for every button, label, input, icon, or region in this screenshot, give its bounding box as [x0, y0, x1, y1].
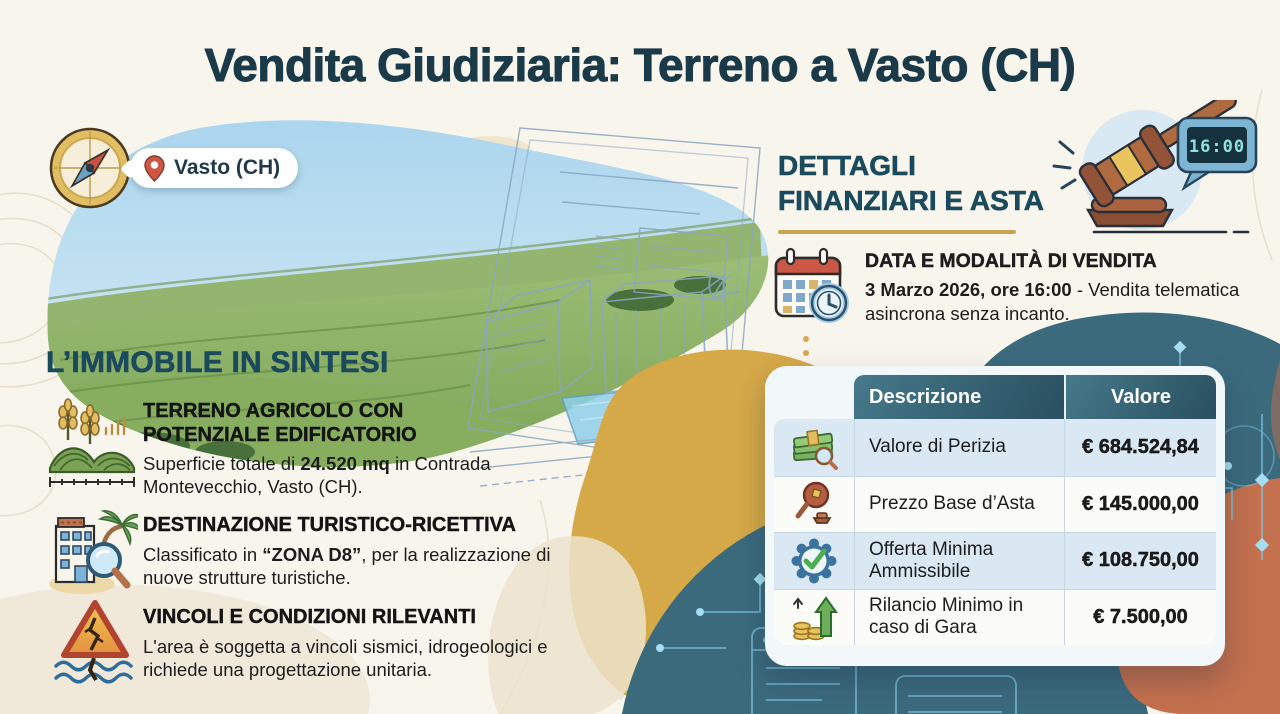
feature-title: DESTINAZIONE TURISTICO-RICETTIVA — [143, 514, 563, 538]
table-row-value: € 145.000,00 — [1064, 476, 1216, 533]
table-row-value: € 7.500,00 — [1064, 589, 1216, 646]
map-pin-icon — [144, 155, 165, 182]
left-section-heading: L’IMMOBILE IN SINTESI — [46, 346, 389, 380]
table-header-valore: Valore — [1064, 375, 1216, 419]
feature-item-vincoli: VINCOLI E CONDIZIONI RILEVANTI L'area è … — [143, 606, 573, 681]
page-title: Vendita Giudiziaria: Terreno a Vasto (CH… — [0, 38, 1280, 92]
auction-gavel-icon: 16:00 — [1030, 100, 1262, 242]
feature-title: TERRENO AGRICOLO CON POTENZIALE EDIFICAT… — [143, 400, 473, 447]
calendar-clock-icon — [772, 246, 852, 326]
table-row-value: € 108.750,00 — [1064, 532, 1216, 589]
feature-body: Superficie totale di 24.520 mq in Contra… — [143, 452, 553, 499]
sale-date-title: DATA E MODALITÀ DI VENDITA — [865, 250, 1255, 273]
table-row-icon-cell — [774, 419, 854, 476]
infographic-canvas: Vendita Giudiziaria: Terreno a Vasto (CH… — [0, 0, 1280, 714]
sale-date-body: 3 Marzo 2026, ore 16:00 - Vendita telema… — [865, 278, 1260, 325]
location-pill-label: Vasto (CH) — [174, 156, 280, 180]
wheat-field-icon — [46, 396, 138, 490]
coins-up-arrow-icon — [790, 592, 838, 642]
finance-table: Descrizione Valore Valore di Perizia € 6… — [774, 375, 1216, 645]
hotel-palm-magnifier-icon — [48, 504, 138, 596]
heading-line1: DETTAGLI — [778, 148, 1044, 183]
feature-title: VINCOLI E CONDIZIONI RILEVANTI — [143, 606, 573, 630]
table-row-label: Offerta Minima Ammissibile — [854, 532, 1064, 589]
feature-body: Classificato in “ZONA D8”, per la realiz… — [143, 543, 563, 590]
table-row-value: € 684.524,84 — [1064, 419, 1216, 476]
clock-time: 16:00 — [1189, 137, 1245, 157]
location-pill: Vasto (CH) — [130, 148, 298, 188]
feature-body: L'area è soggetta a vincoli sismici, idr… — [143, 635, 573, 682]
feature-item-destinazione: DESTINAZIONE TURISTICO-RICETTIVA Classif… — [143, 514, 563, 589]
table-row-label: Prezzo Base d’Asta — [854, 476, 1064, 533]
heading-line2: FINANZIARI E ASTA — [778, 183, 1044, 218]
compass-icon — [48, 126, 132, 210]
banknotes-magnifier-icon — [788, 424, 840, 470]
approved-badge-icon — [790, 537, 838, 585]
table-row-icon-cell — [774, 476, 854, 533]
table-header-descrizione: Descrizione — [854, 375, 1064, 419]
right-section-heading: DETTAGLI FINANZIARI E ASTA — [778, 148, 1044, 218]
table-row-icon-cell — [774, 589, 854, 646]
finance-table-card: Descrizione Valore Valore di Perizia € 6… — [765, 366, 1225, 666]
digital-clock-bubble: 16:00 — [1178, 118, 1256, 188]
feature-item-terreno: TERRENO AGRICOLO CON POTENZIALE EDIFICAT… — [143, 400, 473, 499]
table-row-icon-cell — [774, 532, 854, 589]
table-row-label: Rilancio Minimo in caso di Gara — [854, 589, 1064, 646]
table-row-label: Valore di Perizia — [854, 419, 1064, 476]
seismic-hazard-triangle-icon — [52, 598, 138, 690]
gold-underline — [778, 230, 1016, 234]
price-tag-magnifier-icon — [790, 480, 838, 528]
